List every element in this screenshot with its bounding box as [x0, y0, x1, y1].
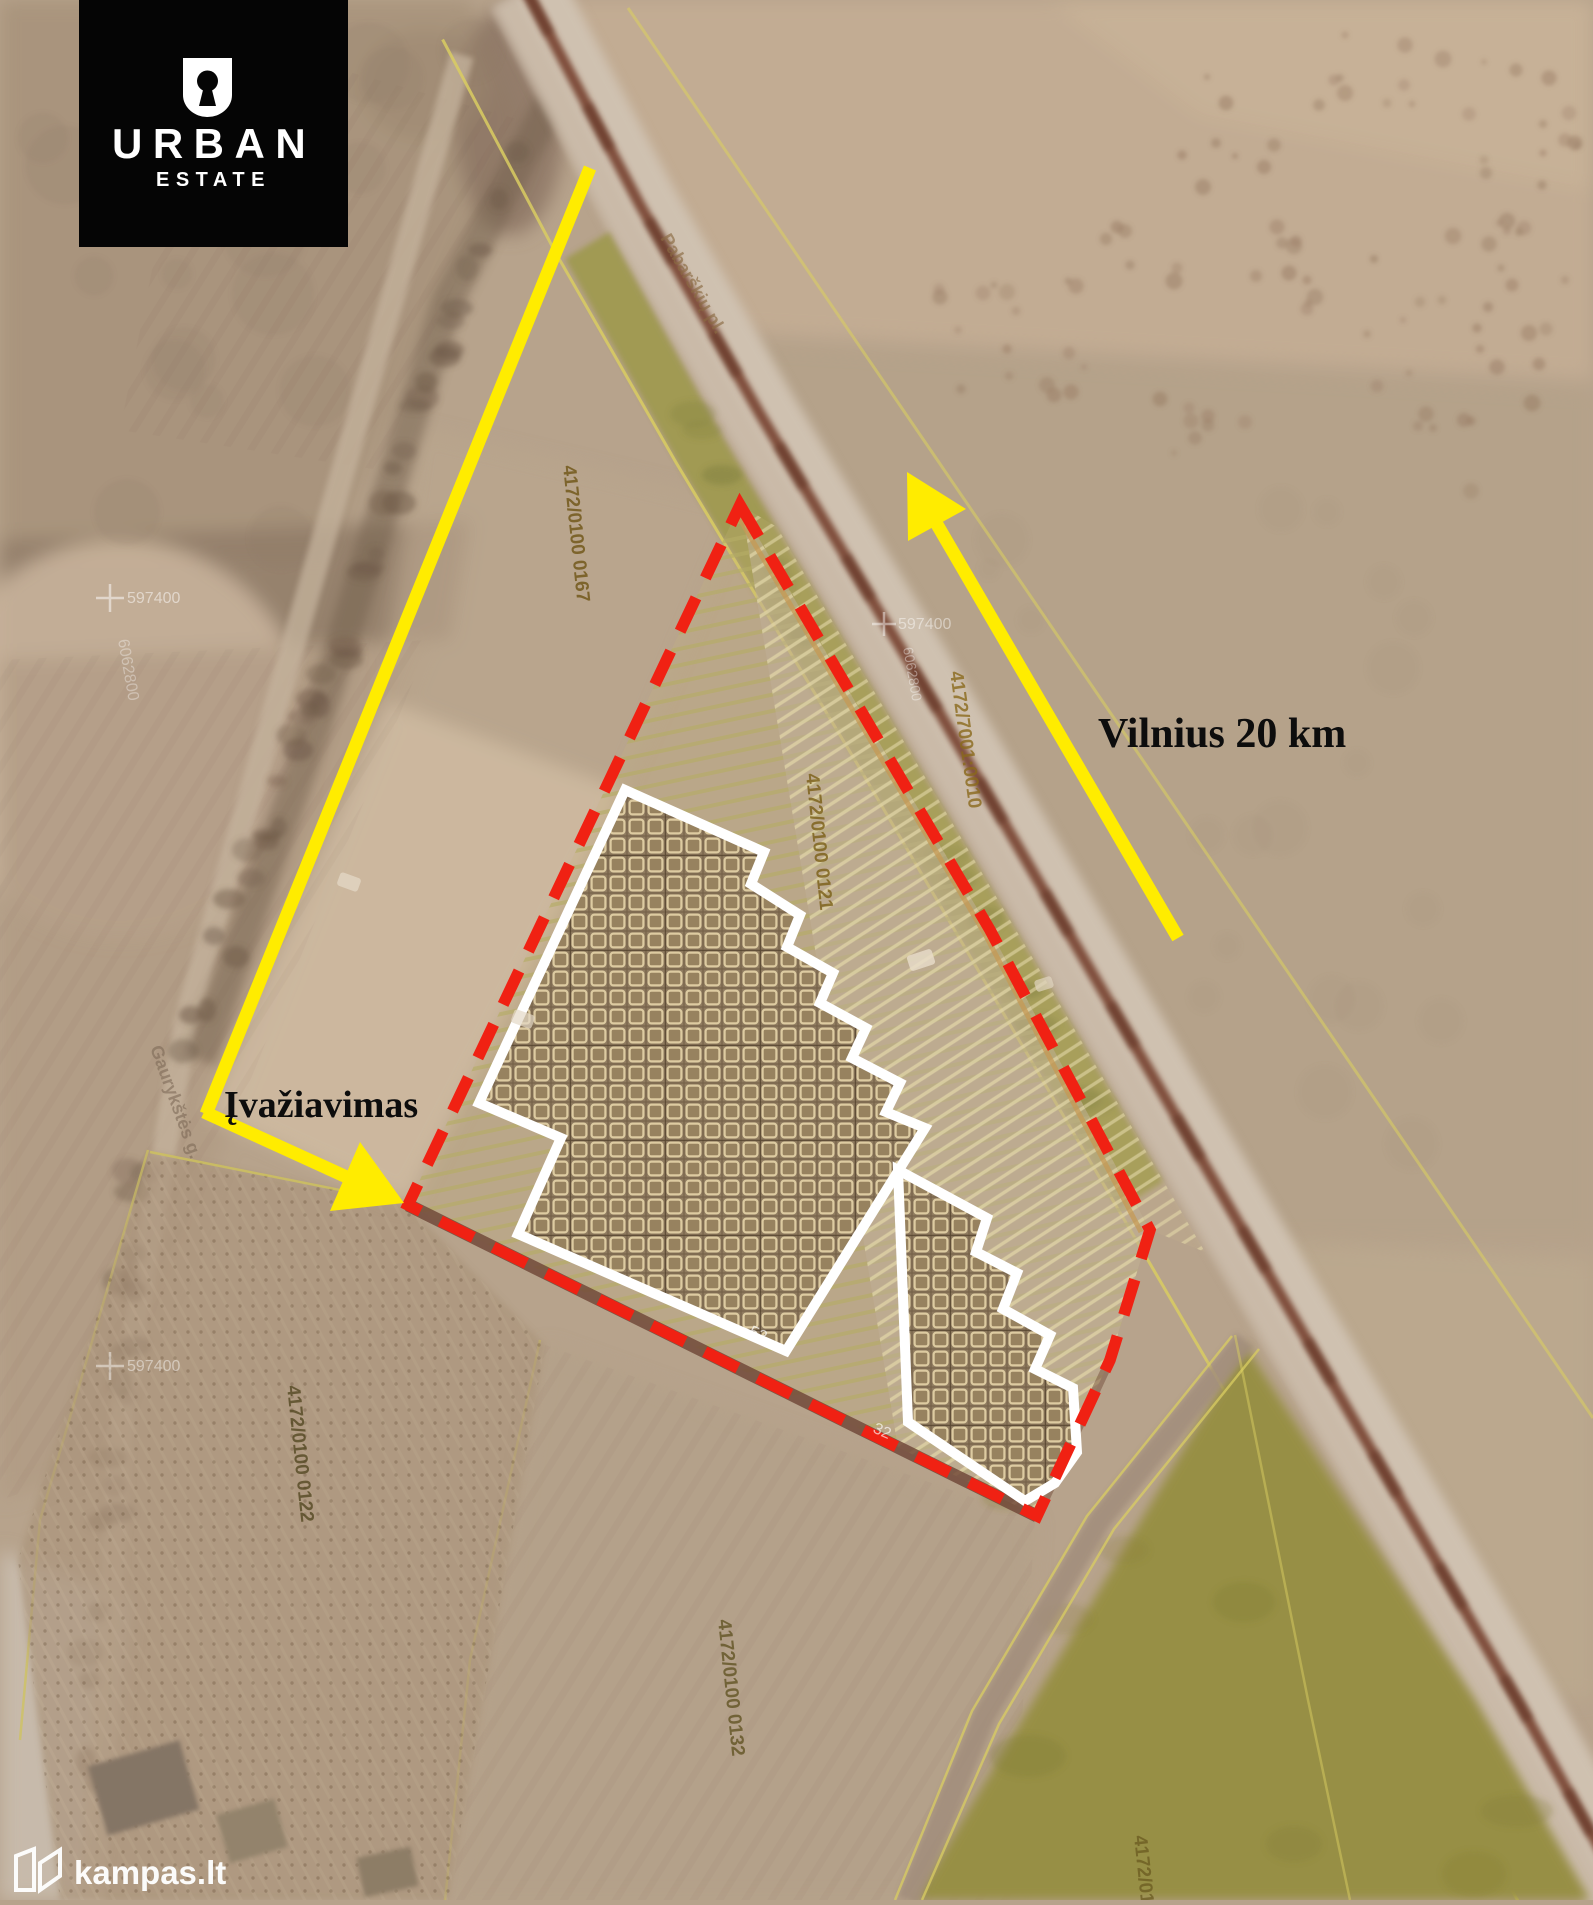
- svg-text:597400: 597400: [127, 1358, 180, 1375]
- svg-text:597400: 597400: [898, 616, 951, 633]
- svg-text:Įvažiavimas: Įvažiavimas: [224, 1084, 418, 1126]
- svg-text:597400: 597400: [127, 590, 180, 607]
- svg-text:URBAN: URBAN: [112, 120, 316, 167]
- svg-text:ESTATE: ESTATE: [156, 169, 271, 191]
- svg-text:kampas.lt: kampas.lt: [74, 1854, 226, 1891]
- svg-text:Vilnius 20 km: Vilnius 20 km: [1098, 711, 1346, 757]
